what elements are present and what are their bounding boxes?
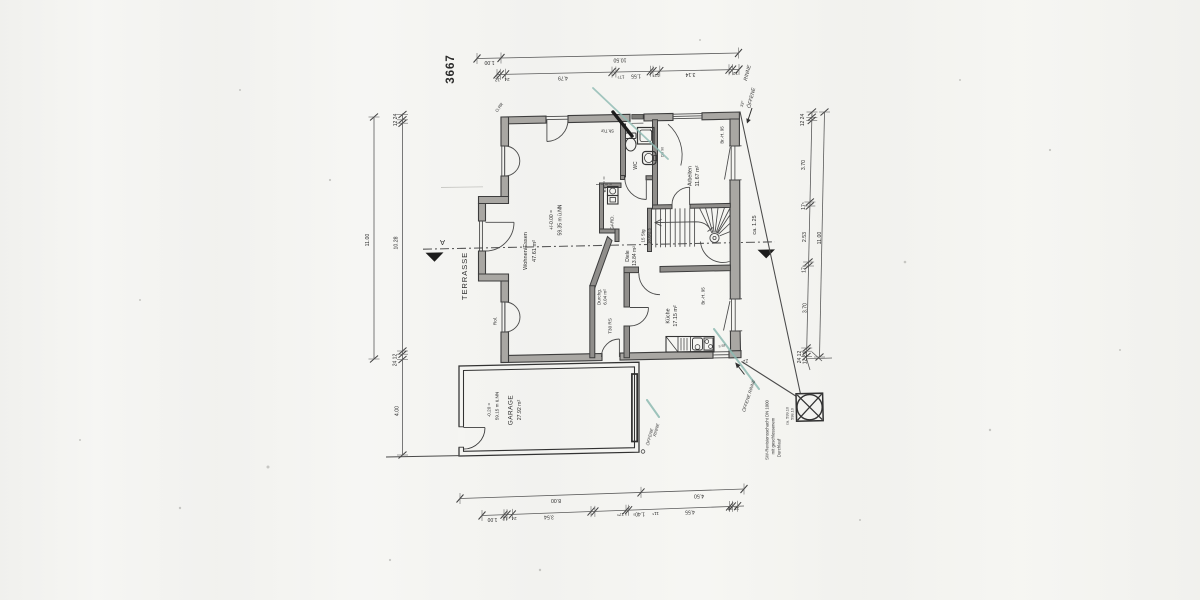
svg-text:17⁵: 17⁵ xyxy=(617,74,624,79)
svg-text:11⁵: 11⁵ xyxy=(653,73,660,78)
svg-text:4.79: 4.79 xyxy=(558,75,568,81)
svg-text:T30 RS: T30 RS xyxy=(608,318,613,334)
svg-text:598.10: 598.10 xyxy=(790,407,795,420)
svg-text:10.50: 10.50 xyxy=(613,57,626,63)
svg-text:17⁵: 17⁵ xyxy=(801,202,807,210)
svg-text:Sh.Tür: Sh.Tür xyxy=(600,129,613,134)
svg-text:17⁵: 17⁵ xyxy=(801,265,807,273)
svg-text:A: A xyxy=(440,238,445,247)
svg-text:10.28: 10.28 xyxy=(393,236,399,249)
svg-text:Arbeiten: Arbeiten xyxy=(687,166,693,186)
svg-text:+/-0.00 =: +/-0.00 = xyxy=(549,210,555,230)
svg-text:11⁵: 11⁵ xyxy=(652,511,659,516)
svg-text:SW-Revisionsschacht DN 1000: SW-Revisionsschacht DN 1000 xyxy=(765,399,770,459)
svg-text:Br.-H. 95: Br.-H. 95 xyxy=(720,126,725,144)
svg-text:GARD.: GARD. xyxy=(610,215,615,230)
svg-text:Küche: Küche xyxy=(665,308,671,323)
svg-text:GARAGE: GARAGE xyxy=(508,395,515,425)
svg-text:12: 12 xyxy=(495,77,501,82)
svg-text:ca. 1.25: ca. 1.25 xyxy=(752,215,758,234)
svg-text:4.55: 4.55 xyxy=(685,508,695,514)
svg-text:12: 12 xyxy=(502,516,508,521)
svg-text:4.50: 4.50 xyxy=(694,492,704,498)
svg-text:13.84 m²: 13.84 m² xyxy=(632,246,638,266)
svg-text:24 12: 24 12 xyxy=(392,354,398,367)
svg-text:1.40⁵: 1.40⁵ xyxy=(633,510,645,516)
svg-text:3667: 3667 xyxy=(445,54,457,84)
svg-text:27.92 m²: 27.92 m² xyxy=(517,399,523,420)
svg-text:15 Stg: 15 Stg xyxy=(641,229,646,243)
svg-text:Durchlauf: Durchlauf xyxy=(777,438,782,457)
svg-text:B4: B4 xyxy=(603,188,607,192)
svg-text:11.67 m²: 11.67 m² xyxy=(695,165,701,186)
svg-text:11.00: 11.00 xyxy=(817,232,823,245)
svg-text:59.35 m ü.NN: 59.35 m ü.NN xyxy=(557,204,563,235)
svg-text:3.14: 3.14 xyxy=(685,71,695,77)
svg-text:mit geschlossenem: mit geschlossenem xyxy=(771,417,776,454)
svg-text:WC: WC xyxy=(633,161,639,170)
svg-text:6.04 m²: 6.04 m² xyxy=(603,289,608,305)
svg-text:2.53: 2.53 xyxy=(802,232,808,242)
svg-text:1.00: 1.00 xyxy=(484,59,494,65)
svg-text:3.54: 3.54 xyxy=(544,514,554,520)
svg-text:24: 24 xyxy=(511,516,517,521)
svg-text:59.15 m ü.NN: 59.15 m ü.NN xyxy=(495,392,500,420)
svg-text:24: 24 xyxy=(504,77,510,82)
svg-text:12: 12 xyxy=(733,71,739,76)
svg-text:Durchg.: Durchg. xyxy=(597,289,602,305)
svg-text:17⁵: 17⁵ xyxy=(617,512,624,517)
svg-text:Br.-H. 95: Br.-H. 95 xyxy=(701,287,706,305)
svg-text:1.55: 1.55 xyxy=(631,73,641,79)
svg-text:12 24: 12 24 xyxy=(802,352,808,365)
svg-text:Diele: Diele xyxy=(625,250,631,262)
svg-text:Wohnen/Essen: Wohnen/Essen xyxy=(523,232,529,270)
svg-text:12 24: 12 24 xyxy=(800,114,806,127)
svg-text:18.8/2.5: 18.8/2.5 xyxy=(647,227,652,244)
svg-text:11.00: 11.00 xyxy=(365,234,371,247)
svg-text:3.70: 3.70 xyxy=(802,303,808,313)
svg-text:Rol.: Rol. xyxy=(493,317,498,325)
svg-text:8.00: 8.00 xyxy=(551,497,561,503)
svg-text:-0.20 =: -0.20 = xyxy=(487,402,492,417)
svg-text:47.61 m²: 47.61 m² xyxy=(532,240,538,262)
svg-text:12 24: 12 24 xyxy=(727,506,739,511)
svg-text:4.00: 4.00 xyxy=(394,406,400,416)
svg-text:TERRASSE: TERRASSE xyxy=(460,252,469,300)
svg-text:1.00: 1.00 xyxy=(487,516,497,522)
svg-text:12 24: 12 24 xyxy=(393,114,399,127)
svg-text:17.15 m²: 17.15 m² xyxy=(673,305,679,326)
svg-text:3.70: 3.70 xyxy=(801,160,807,170)
